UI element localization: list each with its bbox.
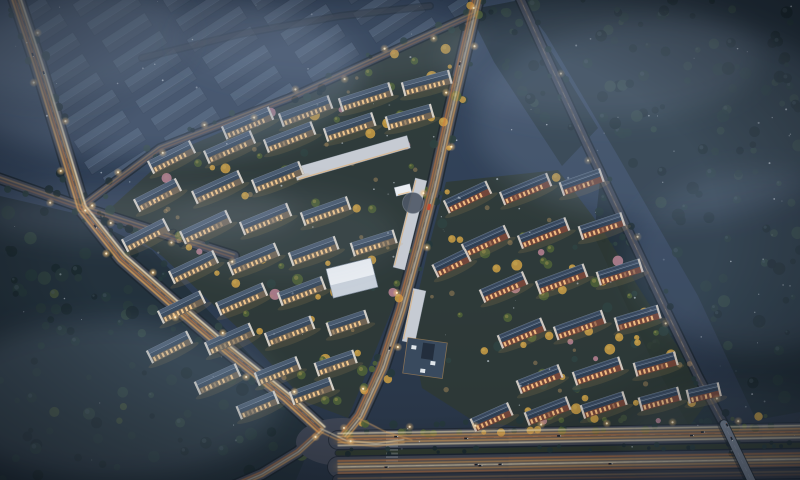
aerial-render-stage <box>0 0 800 480</box>
vignette-overlay <box>0 0 800 480</box>
aerial-night-render <box>0 0 800 480</box>
vignette <box>0 0 800 480</box>
